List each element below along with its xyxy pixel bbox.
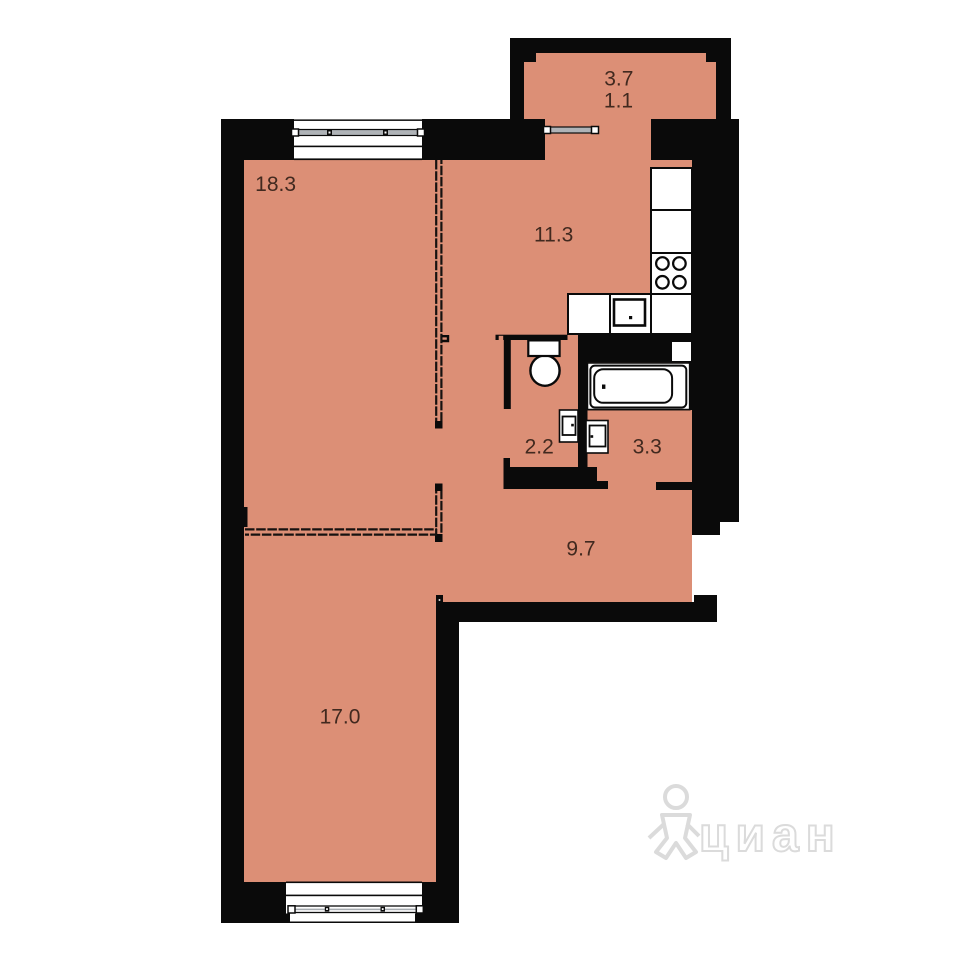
svg-text:3.7: 3.7: [604, 68, 633, 91]
svg-text:1.1: 1.1: [604, 90, 633, 113]
svg-text:2.2: 2.2: [525, 435, 554, 458]
svg-text:9.7: 9.7: [566, 538, 595, 561]
svg-text:17.0: 17.0: [320, 706, 361, 729]
svg-text:циан: циан: [699, 809, 842, 862]
svg-text:18.3: 18.3: [255, 173, 296, 196]
svg-text:11.3: 11.3: [534, 224, 573, 247]
svg-text:3.3: 3.3: [633, 435, 662, 458]
